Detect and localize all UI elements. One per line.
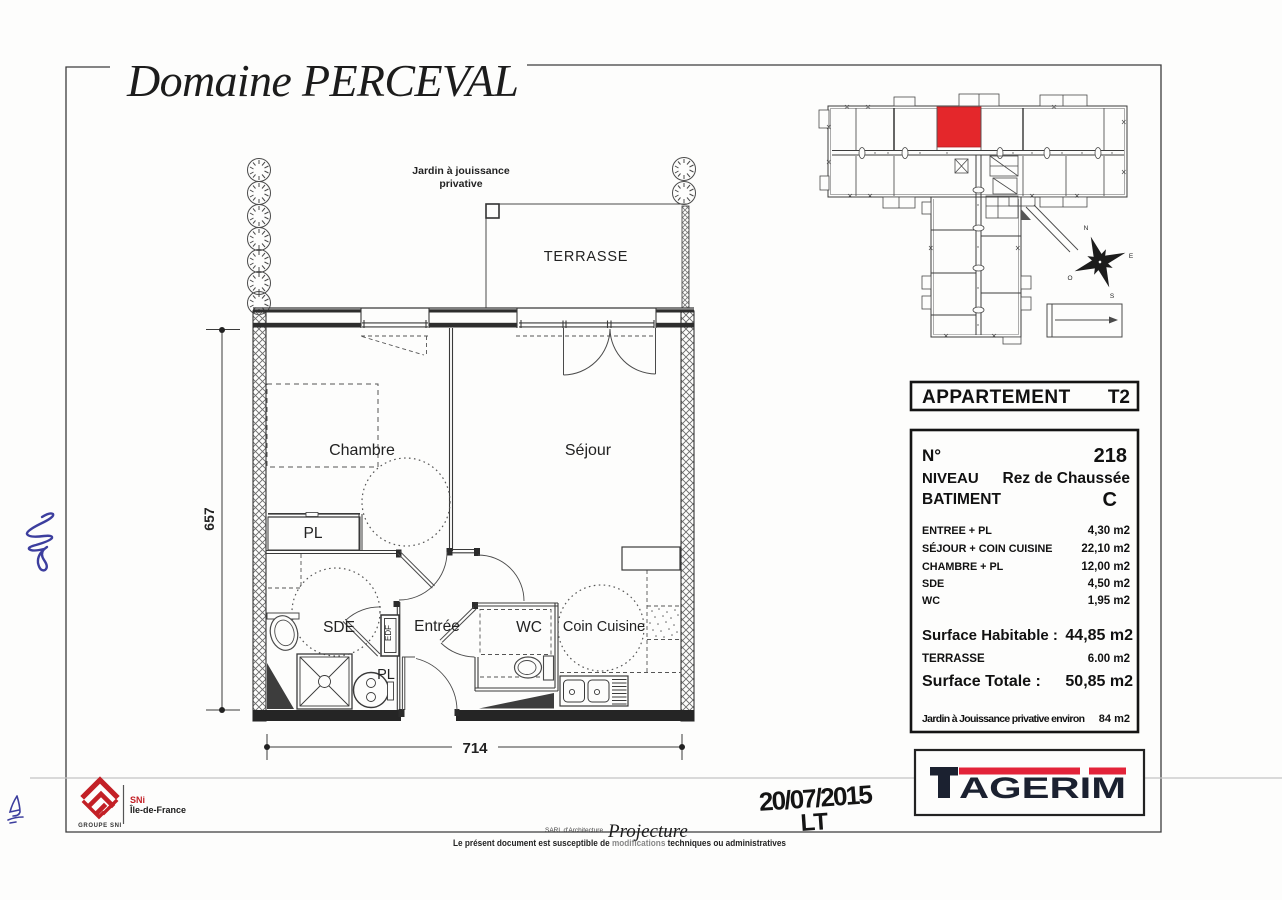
svg-text:4,50 m2: 4,50 m2 [1088, 578, 1130, 590]
svg-text:N°: N° [922, 446, 941, 465]
svg-text:SDE: SDE [922, 578, 944, 590]
svg-text:C: C [1103, 489, 1117, 511]
svg-text:O: O [1067, 275, 1072, 282]
svg-text:PL: PL [377, 667, 395, 683]
svg-text:12,00 m2: 12,00 m2 [1081, 561, 1130, 573]
svg-text:WC: WC [922, 595, 940, 607]
svg-text:SARL d'Architecture: SARL d'Architecture [545, 827, 603, 834]
svg-text:T2: T2 [1108, 387, 1130, 408]
svg-text:NIVEAU: NIVEAU [922, 470, 979, 487]
svg-text:GROUPE SNI: GROUPE SNI [78, 823, 122, 829]
svg-text:SÉJOUR + COIN CUISINE: SÉJOUR + COIN CUISINE [922, 542, 1053, 555]
svg-text:Île-de-France: Île-de-France [129, 804, 186, 815]
svg-text:Entrée: Entrée [414, 618, 460, 635]
svg-text:LT: LT [800, 808, 830, 837]
svg-text:CHAMBRE + PL: CHAMBRE + PL [922, 561, 1004, 573]
svg-text:1,95 m2: 1,95 m2 [1088, 595, 1130, 607]
svg-text:657: 657 [201, 507, 217, 531]
svg-text:SNi: SNi [130, 795, 145, 805]
svg-text:Séjour: Séjour [565, 442, 612, 459]
svg-text:S: S [1110, 293, 1115, 300]
svg-text:privative: privative [439, 178, 482, 190]
svg-text:Surface Totale :: Surface Totale : [922, 673, 1041, 690]
svg-text:Coin Cuisine: Coin Cuisine [563, 619, 645, 635]
svg-text:AGERIM: AGERIM [959, 772, 1126, 805]
svg-text:WC: WC [516, 619, 542, 636]
svg-text:BATIMENT: BATIMENT [922, 491, 1001, 508]
svg-text:Chambre: Chambre [329, 442, 395, 459]
svg-text:6.00 m2: 6.00 m2 [1088, 653, 1130, 665]
svg-text:APPARTEMENT: APPARTEMENT [922, 387, 1071, 408]
svg-text:SDE: SDE [323, 619, 355, 636]
svg-text:22,10 m2: 22,10 m2 [1081, 543, 1130, 555]
svg-text:ENTREE + PL: ENTREE + PL [922, 525, 992, 537]
svg-text:PL: PL [304, 525, 323, 542]
svg-text:Jardin à jouissance: Jardin à jouissance [412, 165, 510, 177]
svg-text:EDF: EDF [384, 625, 393, 641]
svg-text:Rez de Chaussée: Rez de Chaussée [1003, 470, 1131, 487]
svg-text:714: 714 [462, 740, 488, 757]
svg-text:TERRASSE: TERRASSE [922, 653, 985, 665]
svg-text:Jardin à Jouissance privative: Jardin à Jouissance privative environ [922, 713, 1085, 725]
svg-text:Surface Habitable :: Surface Habitable : [922, 627, 1058, 644]
svg-text:50,85 m2: 50,85 m2 [1065, 673, 1133, 690]
svg-text:N: N [1084, 225, 1089, 232]
svg-text:TERRASSE: TERRASSE [544, 249, 629, 265]
svg-text:E: E [1129, 253, 1134, 260]
svg-text:Domaine PERCEVAL: Domaine PERCEVAL [126, 55, 519, 106]
svg-text:4,30 m2: 4,30 m2 [1088, 525, 1130, 537]
svg-text:218: 218 [1094, 445, 1127, 467]
svg-text:44,85 m2: 44,85 m2 [1065, 627, 1133, 644]
svg-text:84 m2: 84 m2 [1099, 713, 1130, 725]
svg-text:Le présent document est suscep: Le présent document est susceptible de m… [453, 838, 786, 849]
